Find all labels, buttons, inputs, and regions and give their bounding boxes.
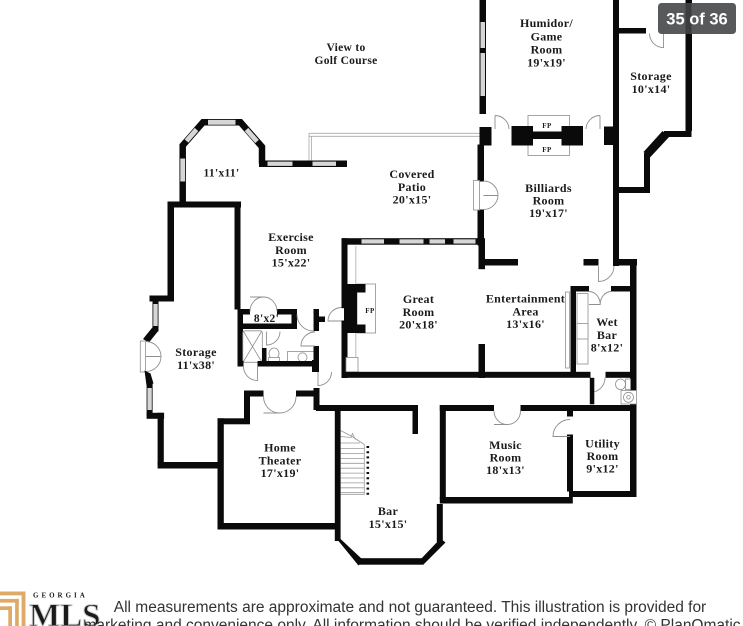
svg-text:17'x19': 17'x19' [261,466,300,480]
svg-text:View to: View to [326,42,365,54]
svg-text:11'x11': 11'x11' [204,168,240,180]
svg-text:Room: Room [531,43,563,57]
svg-text:Storage: Storage [630,69,672,83]
svg-text:35 of 36: 35 of 36 [666,11,727,29]
svg-text:Wet: Wet [596,315,618,329]
svg-text:11'x38': 11'x38' [177,358,215,372]
svg-text:Golf Course: Golf Course [314,55,377,67]
svg-text:19'x19': 19'x19' [527,56,566,70]
svg-text:FP: FP [542,122,552,130]
svg-text:20'x15': 20'x15' [393,193,432,207]
svg-text:FP: FP [365,307,375,315]
svg-text:FP: FP [542,146,552,154]
svg-text:Game: Game [531,30,563,44]
svg-text:9'x12': 9'x12' [586,462,618,476]
svg-text:Great: Great [403,292,434,306]
svg-text:15'x15': 15'x15' [369,517,408,531]
svg-text:8'x12': 8'x12' [591,341,623,355]
svg-text:20'x18': 20'x18' [399,318,438,332]
svg-text:Home: Home [264,441,296,455]
svg-text:Covered: Covered [389,167,434,181]
svg-text:marketing and convenience only: marketing and convenience only. All info… [83,617,740,626]
svg-text:10'x14': 10'x14' [632,82,671,96]
svg-text:All measurements are approxima: All measurements are approximate and not… [114,599,706,616]
svg-text:15'x22': 15'x22' [272,256,311,270]
svg-text:Entertainment: Entertainment [486,292,565,306]
svg-text:Storage: Storage [175,345,217,359]
svg-text:Exercise: Exercise [268,230,314,244]
svg-text:Bar: Bar [378,504,399,518]
svg-text:8'x2': 8'x2' [254,313,279,325]
svg-text:13'x16': 13'x16' [506,317,545,331]
svg-text:18'x13': 18'x13' [486,463,525,477]
svg-text:19'x17': 19'x17' [529,206,568,220]
svg-text:Humidor/: Humidor/ [520,16,573,30]
